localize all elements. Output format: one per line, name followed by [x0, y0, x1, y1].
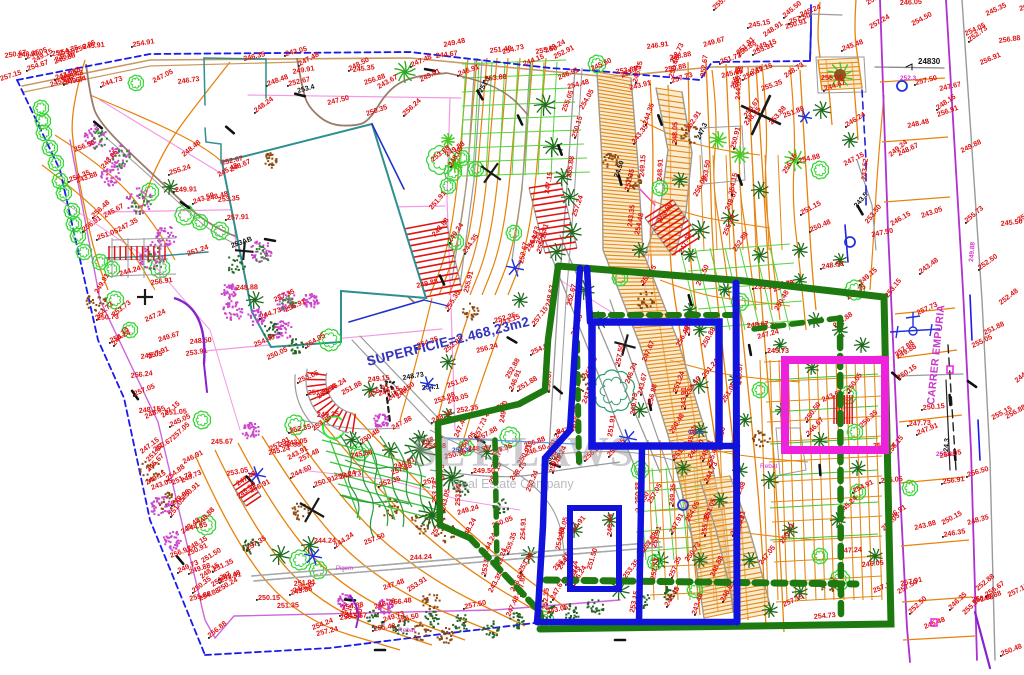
- svg-text:249.91: 249.91: [175, 184, 197, 194]
- svg-text:249.35: 249.35: [667, 484, 678, 507]
- svg-text:Rebat: Rebat: [760, 463, 778, 470]
- svg-text:248.05: 248.05: [670, 122, 679, 144]
- svg-text:255.05: 255.05: [821, 73, 843, 82]
- svg-text:248.88: 248.88: [236, 282, 258, 292]
- svg-text:254.91: 254.91: [518, 518, 528, 540]
- svg-text:251.88: 251.88: [308, 387, 330, 397]
- svg-text:248.91: 248.91: [655, 159, 665, 181]
- svg-text:246.24: 246.24: [605, 514, 614, 536]
- svg-text:245.67: 245.67: [211, 437, 233, 446]
- svg-text:257.91: 257.91: [227, 212, 249, 222]
- svg-text:244.24: 244.24: [410, 552, 432, 562]
- svg-text:251.35: 251.35: [277, 600, 299, 610]
- svg-text:SETcLAWS: SETcLAWS: [413, 430, 634, 476]
- svg-text:246.05: 246.05: [900, 0, 922, 7]
- svg-text:249.15: 249.15: [637, 155, 648, 178]
- svg-text:24830: 24830: [918, 57, 941, 66]
- svg-text:Rebat: Rebat: [398, 627, 416, 634]
- svg-text:Pigem: Pigem: [336, 566, 353, 572]
- svg-text:Real Estate Company: Real Estate Company: [452, 477, 574, 491]
- svg-text:254.73: 254.73: [813, 610, 836, 621]
- svg-text:248.50: 248.50: [189, 335, 212, 346]
- svg-text:244.05: 244.05: [733, 78, 744, 101]
- svg-text:245.73: 245.73: [767, 346, 789, 355]
- svg-text:256.05: 256.05: [880, 474, 903, 485]
